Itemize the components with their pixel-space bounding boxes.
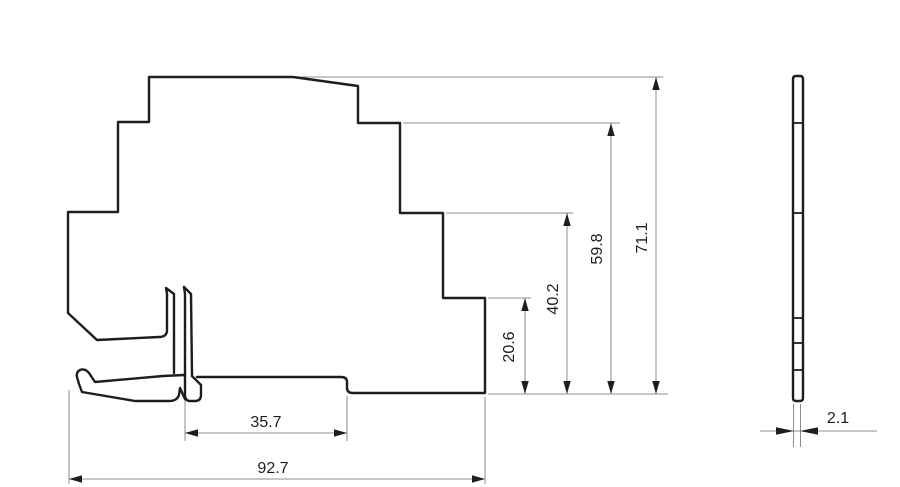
arrow-top-overall-height: [652, 77, 659, 90]
edge-view: [793, 76, 803, 401]
profile-outline-main: [68, 77, 485, 393]
dim-label-step1-height: 20.6: [501, 331, 518, 362]
arrow-bottom-overall-height: [652, 381, 659, 394]
technical-drawing-canvas: 35.7 92.7 20.6 40.2 59.8 71.1 2.1: [0, 0, 900, 487]
dimension-labels: 35.7 92.7 20.6 40.2 59.8 71.1 2.1: [250, 222, 849, 477]
arrow-top-step3: [607, 123, 614, 136]
din-clip-right-prong-foot: [184, 287, 201, 401]
arrow-right-overall-width: [472, 475, 485, 482]
arrow-left-slot-width: [185, 429, 198, 436]
dim-label-overall-width: 92.7: [257, 460, 288, 477]
dim-label-slot-width: 35.7: [250, 414, 281, 431]
arrow-top-step2: [563, 213, 570, 226]
dim-label-step2-height: 40.2: [545, 283, 562, 314]
arrow-right-slot-width: [334, 429, 347, 436]
din-clip-shelf: [77, 369, 185, 401]
arrow-right-thickness: [800, 427, 818, 434]
technical-drawing-page: 35.7 92.7 20.6 40.2 59.8 71.1 2.1: [0, 0, 900, 487]
arrow-bottom-step3: [607, 381, 614, 394]
dim-label-step3-height: 59.8: [589, 233, 606, 264]
dim-label-thickness: 2.1: [827, 410, 849, 427]
arrow-left-overall-width: [69, 475, 82, 482]
arrow-bottom-step2: [563, 381, 570, 394]
arrow-left-thickness: [776, 427, 794, 434]
dimension-lines: [69, 77, 877, 479]
dim-label-overall-height: 71.1: [634, 222, 651, 253]
edge-view-body: [793, 76, 803, 401]
side-profile-view: [68, 77, 485, 401]
arrow-bottom-step1: [521, 381, 528, 394]
arrow-top-step1: [521, 298, 528, 311]
extension-lines: [69, 77, 801, 484]
